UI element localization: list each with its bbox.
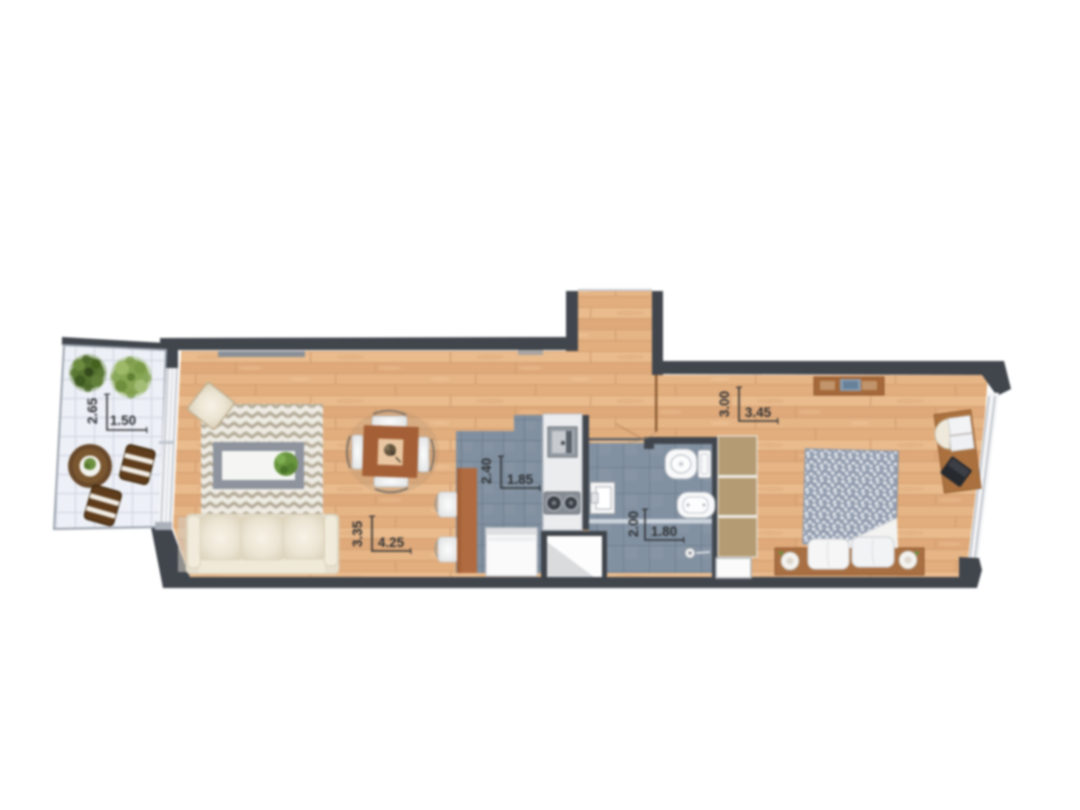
- svg-text:2.65: 2.65: [85, 397, 100, 424]
- svg-text:2.40: 2.40: [479, 458, 494, 484]
- svg-text:3.45: 3.45: [745, 405, 772, 420]
- svg-text:1.80: 1.80: [651, 524, 677, 539]
- svg-text:3.35: 3.35: [350, 520, 365, 547]
- svg-text:2.00: 2.00: [626, 511, 641, 537]
- svg-text:1.85: 1.85: [507, 472, 534, 487]
- svg-text:3.00: 3.00: [717, 391, 732, 417]
- svg-text:4.25: 4.25: [378, 535, 405, 550]
- svg-text:1.50: 1.50: [110, 413, 136, 428]
